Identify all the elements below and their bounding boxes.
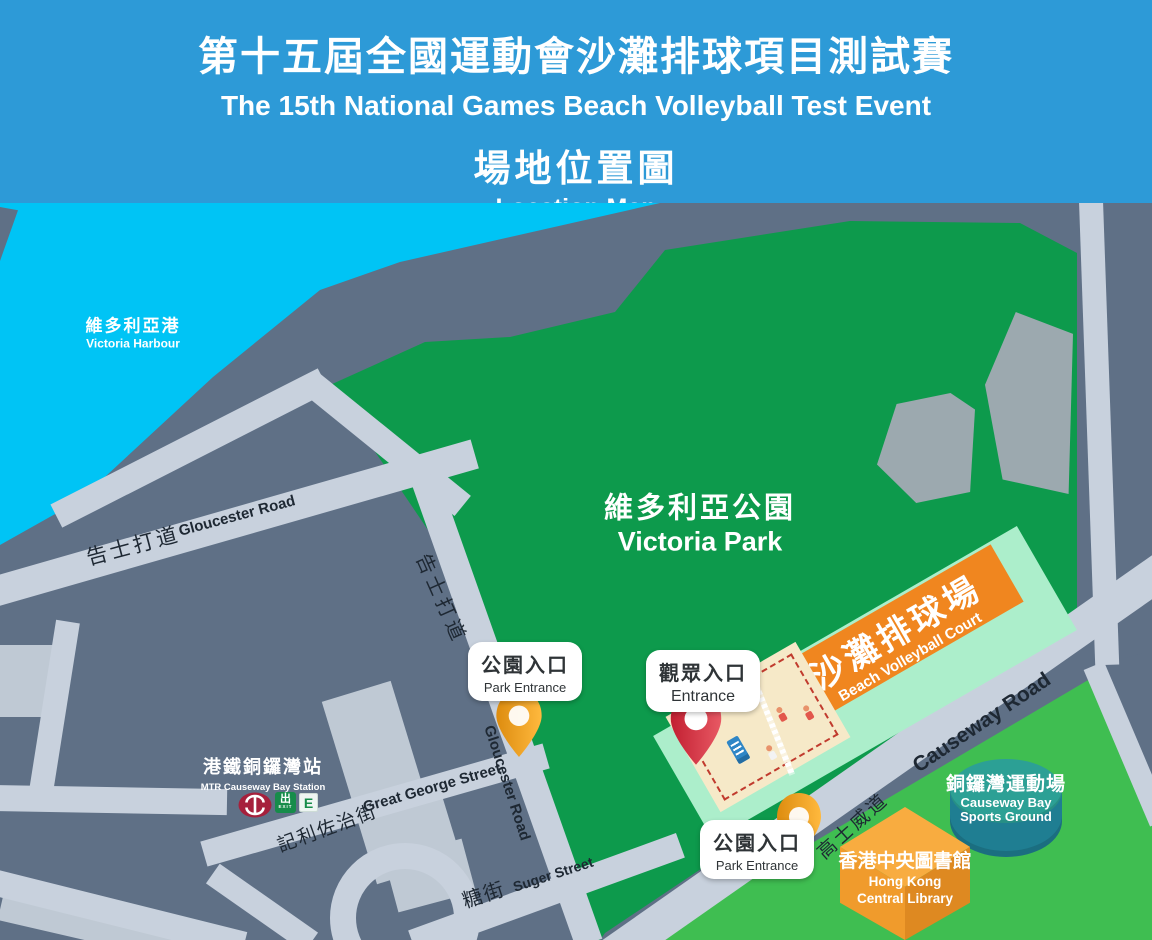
map-canvas: 沙灘排球場 Beach Volleyball Court 維多利亞港 Victo… bbox=[0, 203, 1152, 940]
park-entrance-label-2: 公園入口 Park Entrance bbox=[700, 820, 814, 879]
event-title-en: The 15th National Games Beach Volleyball… bbox=[0, 90, 1152, 122]
victoria-harbour-label: 維多利亞港 Victoria Harbour bbox=[86, 312, 181, 351]
harbour-label-en: Victoria Harbour bbox=[86, 337, 181, 351]
library-label: 香港中央圖書館 Hong Kong Central Library bbox=[825, 846, 985, 907]
header: 第十五屆全國運動會沙灘排球項目測試賽 The 15th National Gam… bbox=[0, 0, 1152, 203]
sports-ground-label-en2: Sports Ground bbox=[926, 810, 1086, 824]
park-entrance-en: Park Entrance bbox=[481, 680, 569, 695]
victoria-park-label: 維多利亞公園 Victoria Park bbox=[604, 485, 796, 558]
library-label-en1: Hong Kong bbox=[825, 875, 985, 890]
library-label-zh: 香港中央圖書館 bbox=[825, 846, 985, 873]
spectator-entrance-label: 觀眾入口 Entrance bbox=[646, 650, 760, 712]
exit-letter-badge: E bbox=[299, 793, 318, 812]
exit-en: EXIT bbox=[275, 805, 296, 810]
sports-ground-label: 銅鑼灣運動場 Causeway Bay Sports Ground bbox=[926, 769, 1086, 823]
road-east-vertical bbox=[1079, 203, 1119, 665]
spectator-entrance-zh: 觀眾入口 bbox=[659, 657, 747, 686]
mtr-logo-icon bbox=[238, 792, 272, 818]
sports-ground-label-zh: 銅鑼灣運動場 bbox=[926, 769, 1086, 796]
spectator-entrance-en: Entrance bbox=[659, 688, 747, 706]
sports-ground-label-en1: Causeway Bay bbox=[926, 796, 1086, 810]
park-entrance-zh: 公園入口 bbox=[481, 649, 569, 678]
library-label-en2: Central Library bbox=[825, 892, 985, 907]
map-subtitle-zh: 場地位置圖 bbox=[0, 138, 1152, 192]
park-label-en: Victoria Park bbox=[604, 527, 796, 558]
harbour-label-zh: 維多利亞港 bbox=[86, 312, 181, 337]
park-label-zh: 維多利亞公園 bbox=[604, 485, 796, 527]
mtr-station-icons: 出 EXIT E bbox=[238, 792, 318, 818]
location-map-poster: 第十五屆全國運動會沙灘排球項目測試賽 The 15th National Gam… bbox=[0, 0, 1152, 940]
mtr-station-label-zh: 港鐵銅鑼灣站 bbox=[178, 753, 348, 779]
mtr-exit-icon: 出 EXIT bbox=[275, 792, 296, 813]
park-entrance-zh: 公園入口 bbox=[713, 827, 801, 856]
mtr-station-label: 港鐵銅鑼灣站 MTR Causeway Bay Station bbox=[178, 753, 348, 793]
park-entrance-label-1: 公園入口 Park Entrance bbox=[468, 642, 582, 701]
park-entrance-en: Park Entrance bbox=[713, 858, 801, 873]
event-title-zh: 第十五屆全國運動會沙灘排球項目測試賽 bbox=[0, 24, 1152, 82]
